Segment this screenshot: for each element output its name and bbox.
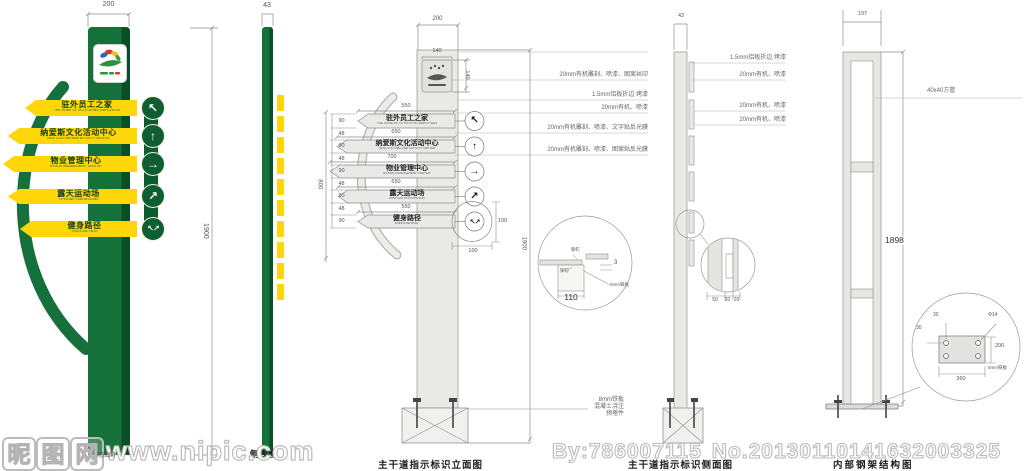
- dim-plate-height: 200: [995, 343, 1004, 349]
- sign-row-plate: 驻外员工之家 THE HOME OF OUTSTAYING EMPLOYEES: [25, 100, 137, 116]
- caption-front-elevation: 主干道指示标识立面图: [378, 457, 483, 471]
- rivet-note: 铆钉: [571, 248, 580, 253]
- dim-layer: 20: [731, 298, 742, 304]
- material-note: 20mm有机、喷漆: [656, 117, 786, 123]
- sign-row-label-zh: 纳爱斯文化活动中心: [40, 129, 117, 137]
- dim-frame-width: 197: [845, 11, 880, 17]
- watermark-credit-by: By:786007115: [552, 440, 702, 463]
- dim-rows-span: 800: [316, 174, 323, 194]
- watermark-credit: By:786007115No.20130110141632003325: [552, 440, 1011, 464]
- dim-row-width: 550: [376, 103, 436, 109]
- arrow-double-icon: ↖↗: [141, 217, 165, 241]
- front-row-label: 驻外员工之家THE HOME OF OUTSTAYING EMPLOYEES: [362, 114, 452, 128]
- material-note: 20mm有机、喷漆: [656, 72, 786, 78]
- side-pole: [674, 52, 687, 443]
- dim-plate-edge: 30: [916, 326, 922, 332]
- dim-sign-width: 200: [88, 1, 129, 9]
- arrow-up-icon: ↑: [141, 124, 165, 148]
- dim-front-width: 200: [417, 16, 458, 23]
- material-note: 1.5mm铝板折边 烤漆: [656, 55, 786, 61]
- dim-row-width: 550: [376, 204, 436, 210]
- dim-row-height: 90: [334, 143, 349, 149]
- arrow-double-icon: ↖↗: [465, 219, 484, 226]
- sign-row-label-en: OPEN AIR PLAYGROUND: [59, 198, 98, 201]
- base-note: 8mm铁板: [540, 397, 624, 403]
- brand-logo-icon: [94, 45, 126, 82]
- sign-side-view-plate-edges: [277, 95, 284, 301]
- arrow-up-right-icon: ↗: [141, 184, 165, 208]
- base-note: 预埋件: [540, 411, 624, 417]
- dim-hole-diameter: Φ14: [988, 313, 998, 319]
- material-note: 20mm有机雕刻、喷漆、文字贴反光膜: [468, 125, 648, 131]
- dim-row-width: 650: [366, 179, 426, 185]
- dim-row-gap: 48: [334, 206, 349, 212]
- sign-row-label-en: NICE CULTURE AND ACTIVITY CENTER: [48, 137, 110, 140]
- dim-row-gap: 48: [334, 156, 349, 162]
- base-note: 混凝土浇注: [540, 404, 624, 410]
- front-row-label: 物业管理中心ESTATE MANAGEMENT CENTER: [362, 165, 452, 179]
- arrow-right-icon: →: [141, 152, 165, 176]
- joint-plate-note: 3mm铁板: [610, 283, 629, 288]
- front-row-label: 健身路径EXERCISE PATH: [362, 215, 452, 229]
- front-elevation-linework: [324, 23, 648, 443]
- sign-side-view-bar: [262, 27, 273, 455]
- signage-design-sheet: 驻外员工之家 THE HOME OF OUTSTAYING EMPLOYEES …: [0, 0, 1024, 471]
- steel-frame-linework: [826, 10, 1022, 418]
- watermark-small-text: 昵图网: [97, 450, 115, 459]
- watermark-site-url: www.nipic.com: [106, 436, 315, 467]
- sign-row-label-zh: 驻外员工之家: [62, 101, 113, 109]
- dim-sign-height: 1900: [201, 220, 209, 242]
- front-row-label: 纳爱斯文化活动中心NICE CULTURE AND ACTIVITY CENTE…: [362, 140, 452, 154]
- dim-front-height: 1900: [520, 232, 527, 254]
- dim-plate-edge: 30: [933, 313, 939, 319]
- dim-frame-height: 1898: [884, 236, 905, 245]
- arrow-up-right-icon: ↗: [465, 192, 484, 202]
- sign-row-plate: 露天运动场 OPEN AIR PLAYGROUND: [8, 189, 137, 204]
- dim-row-gap: 48: [334, 181, 349, 187]
- dim-joint-width: 110: [556, 293, 586, 302]
- material-note: 20mm有机、喷漆: [656, 103, 786, 109]
- material-note: 20mm有机、喷漆: [468, 105, 648, 111]
- material-note: 20mm有机雕刻、喷漆、图案贴反光膜: [468, 147, 648, 153]
- side-elevation-linework: [663, 24, 786, 443]
- dim-arrow-circle: 100: [498, 218, 507, 224]
- front-row-label: 露天运动场OPEN AIR PLAYGROUND: [362, 190, 452, 204]
- arrow-up-left-icon: ↖: [465, 116, 484, 126]
- sign-logo-plate: [93, 44, 127, 83]
- dim-side-depth: 43: [670, 13, 692, 19]
- arrow-right-icon: →: [465, 167, 484, 177]
- plate-material-note: 8mm铁板: [988, 366, 1007, 371]
- sign-row-plate: 纳爱斯文化活动中心 NICE CULTURE AND ACTIVITY CENT…: [8, 128, 137, 144]
- sign-row-label-zh: 露天运动场: [57, 190, 100, 198]
- dim-row-height: 90: [334, 118, 349, 124]
- dim-row-gap: 48: [334, 131, 349, 137]
- sign-row-plate: 物业管理中心 ESTATE MANAGEMENT CENTER: [3, 156, 137, 172]
- dim-row-height: 90: [334, 168, 349, 174]
- watermark-logo-char: 图: [36, 437, 70, 471]
- arrow-up-icon: ↑: [465, 142, 484, 152]
- dim-logo-width: 140: [422, 48, 452, 54]
- watermark-credit-no: No.20130110141632003325: [712, 440, 1001, 463]
- sign-row-label-en: THE HOME OF OUTSTAYING EMPLOYEES: [54, 109, 120, 112]
- sign-row-label-en: ESTATE MANAGEMENT CENTER: [50, 165, 101, 168]
- sign-row-plate: 健身路径 EXERCISE PATH: [20, 221, 137, 237]
- sign-row-label-zh: 物业管理中心: [51, 157, 102, 165]
- dim-plate-width: 360: [947, 376, 975, 382]
- material-note: 1.5mm铝板折边 烤漆: [468, 92, 648, 98]
- dim-sign-depth: 43: [256, 2, 278, 10]
- dim-row-width: 700: [362, 154, 422, 160]
- dim-joint-thickness: 3: [614, 260, 617, 267]
- material-note: 20mm有机雕刻、喷漆、图案丝印: [468, 72, 648, 78]
- tube-spec-note: 40x40方管: [927, 88, 955, 95]
- dim-row-height: 90: [334, 193, 349, 199]
- arrow-up-left-icon: ↖: [141, 96, 165, 120]
- rivet-note: 铆钉: [560, 269, 569, 274]
- watermark-logo-char: 昵: [2, 437, 36, 471]
- sign-row-label-en: EXERCISE PATH: [72, 230, 98, 233]
- side-plate-edges: [689, 62, 694, 266]
- dim-row-width: 650: [366, 129, 426, 135]
- dim-row-height: 90: [334, 218, 349, 224]
- dim-arrow-circle: 100: [458, 248, 488, 254]
- sign-row-label-zh: 健身路径: [68, 222, 102, 230]
